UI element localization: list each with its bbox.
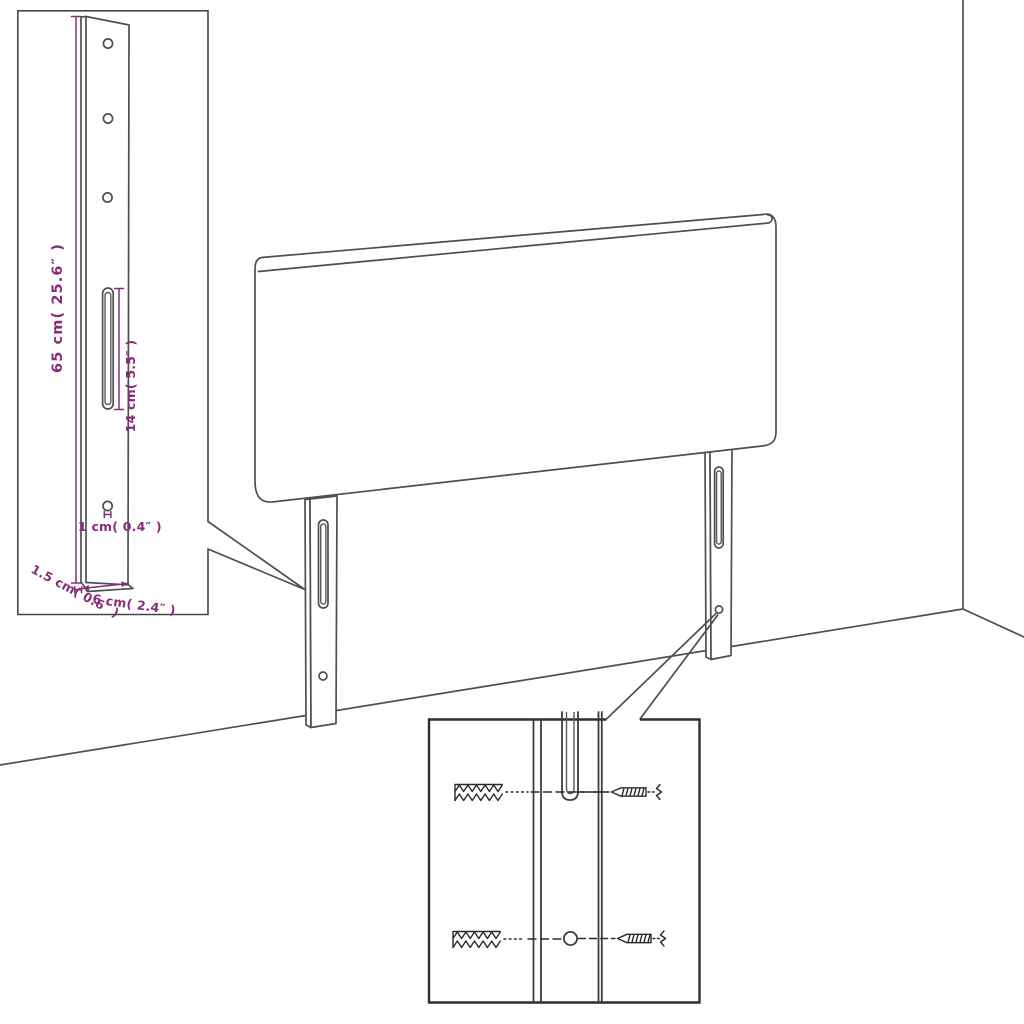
height-dimension-label: 65 cm( 25.6″ ) (50, 243, 66, 373)
headboard-panel (255, 214, 776, 502)
headboard-diagram: 65 cm( 25.6″ ) 14 cm( 5.5″ ) 1 cm( 0.4″ … (0, 0, 1024, 1024)
left-leg-front-face (310, 496, 337, 728)
hole-dimension-label: 1 cm( 0.4″ ) (78, 519, 162, 534)
hardware-callout-lines (607, 614, 718, 720)
headboard-left-leg (305, 496, 337, 728)
headboard-outline (255, 214, 776, 502)
diagram-canvas: 65 cm( 25.6″ ) 14 cm( 5.5″ ) 1 cm( 0.4″ … (0, 0, 1024, 1024)
slot-dimension-label: 14 cm( 5.5″ ) (123, 340, 138, 433)
hardware-inset-box (429, 720, 700, 1003)
detail-callout-lines (208, 522, 305, 590)
